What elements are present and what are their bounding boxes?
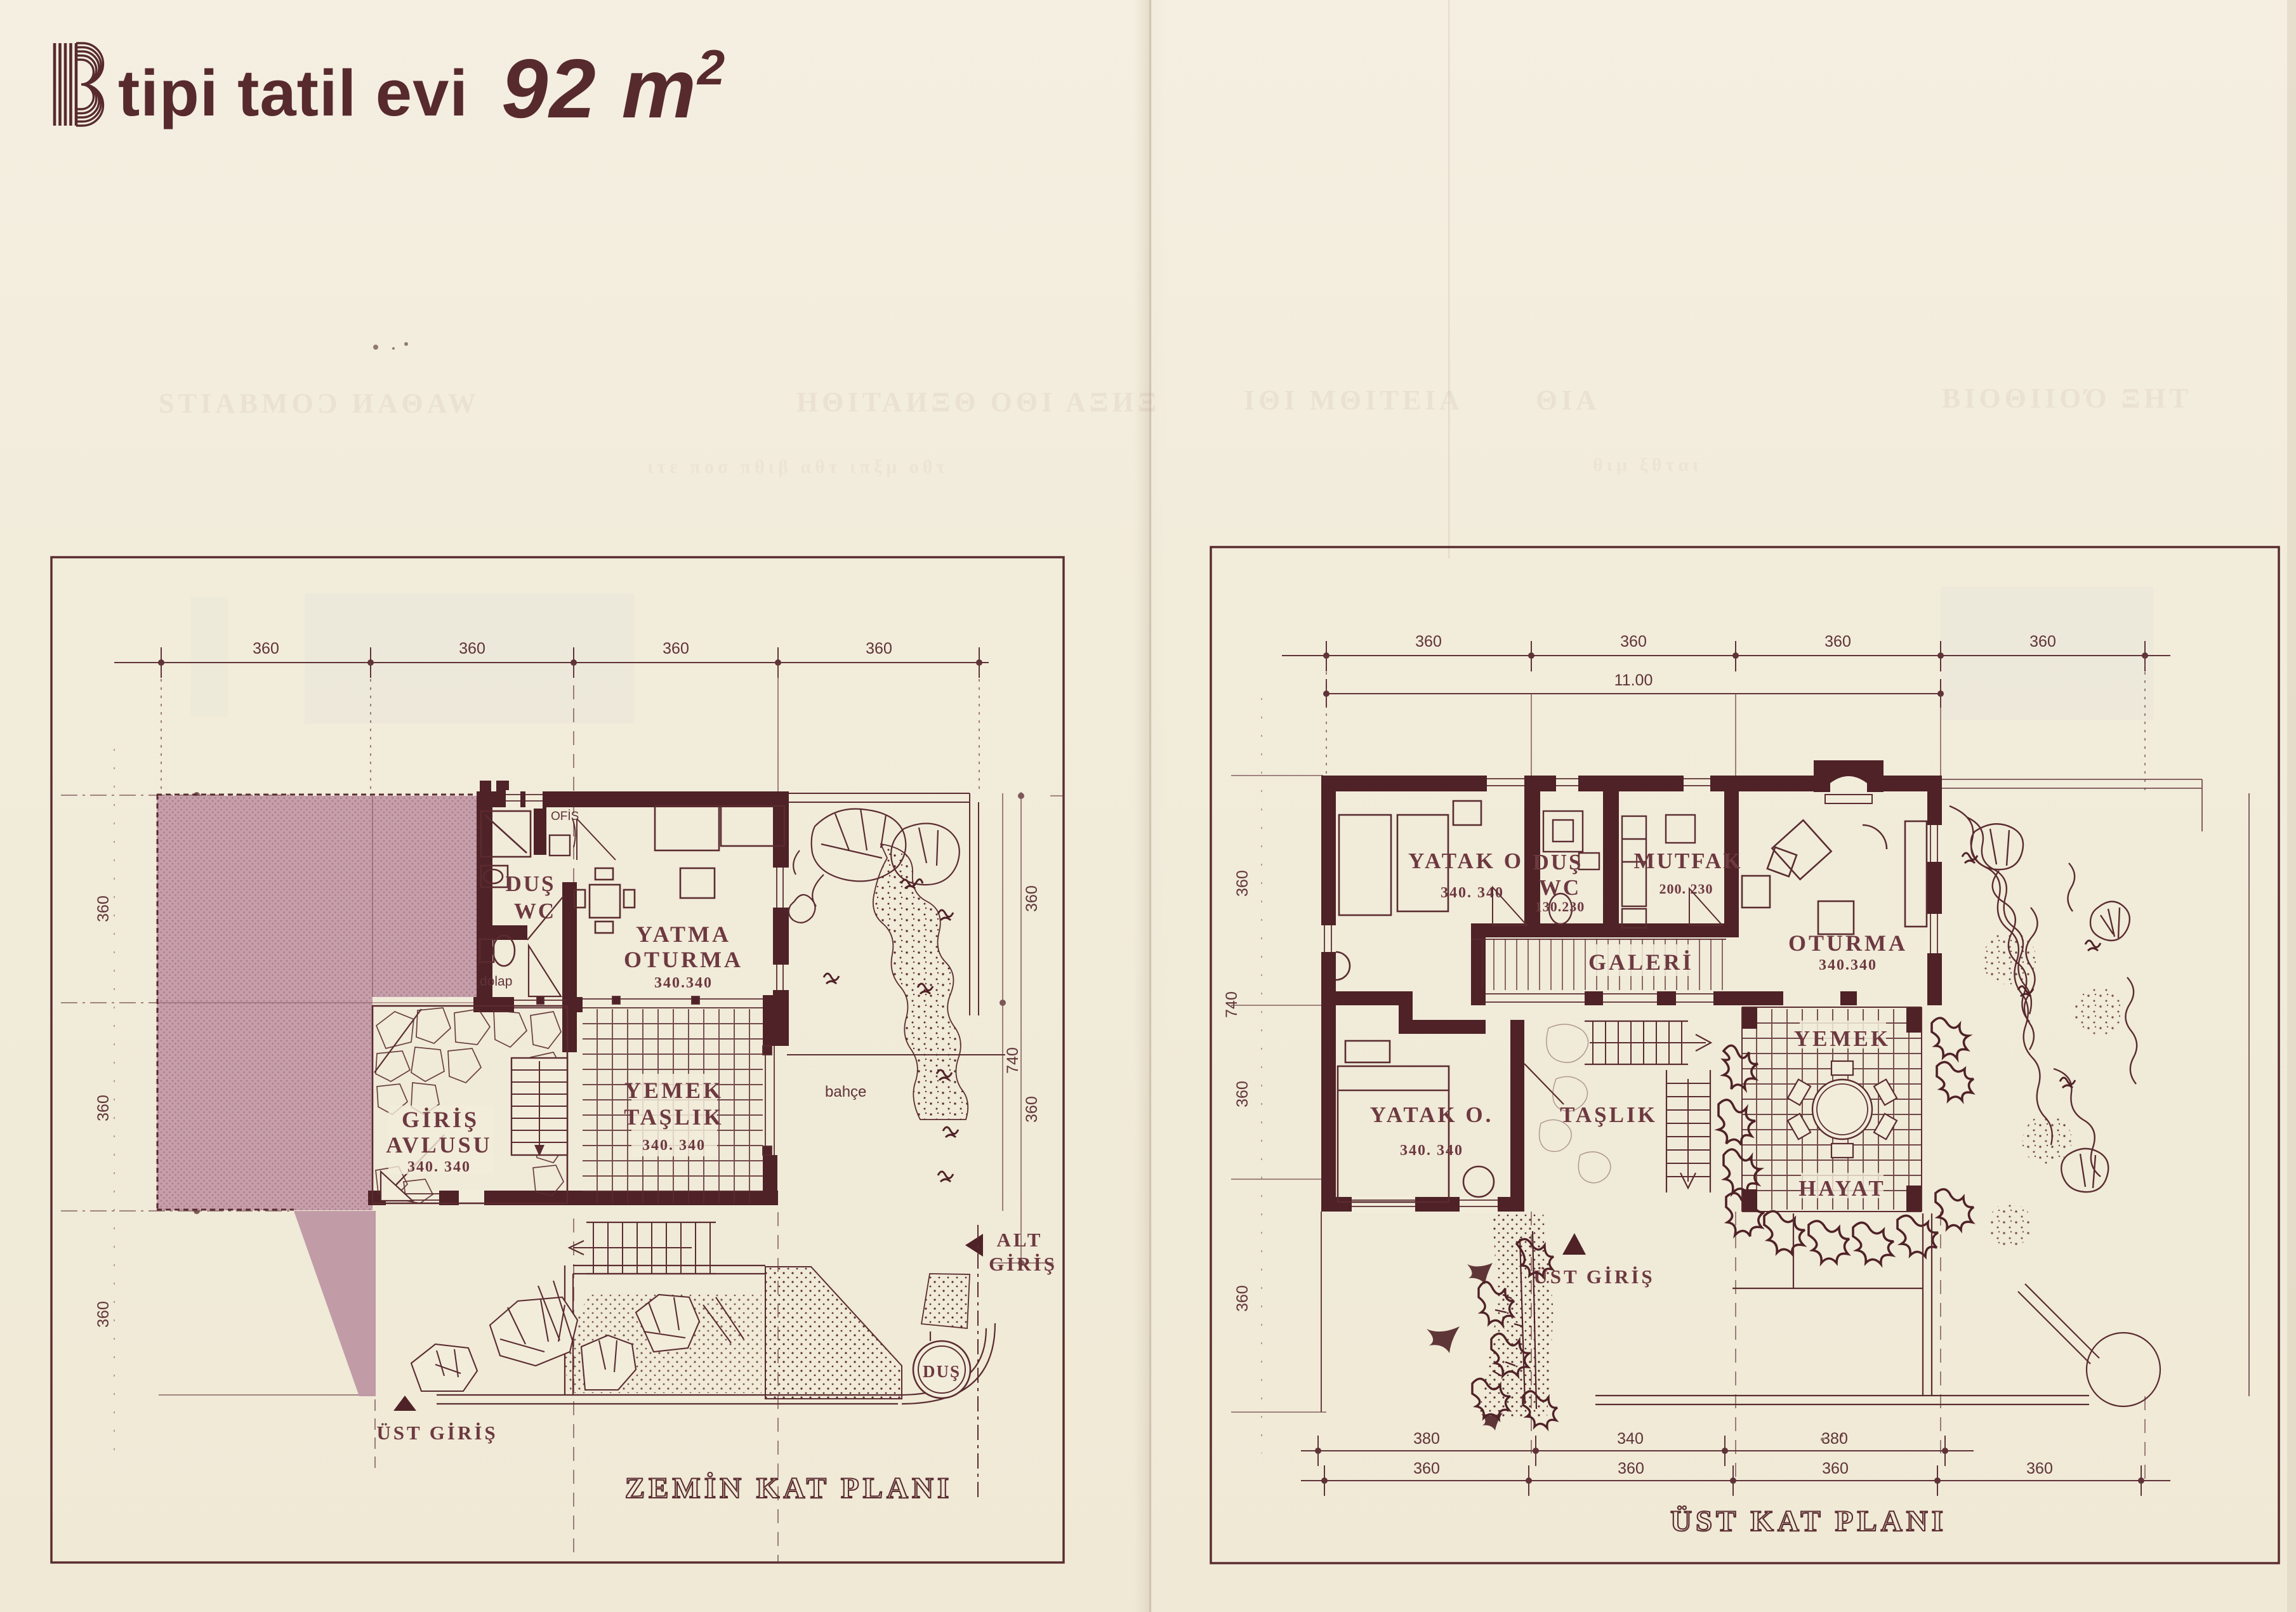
svg-text:360: 360 (1234, 1285, 1251, 1312)
svg-text:DUŞ: DUŞ (923, 1362, 961, 1381)
svg-text:WC: WC (514, 899, 556, 923)
svg-text:360: 360 (1023, 885, 1041, 912)
svg-text:OTURMA: OTURMA (624, 947, 743, 972)
svg-text:tipi tatil evi: tipi tatil evi (118, 56, 468, 129)
svg-text:DUŞ: DUŞ (505, 871, 555, 896)
svg-text:340. 340: 340. 340 (1441, 885, 1504, 901)
svg-text:ΘΙΑ: ΘΙΑ (1536, 385, 1600, 416)
svg-text:340.340: 340.340 (654, 975, 713, 991)
svg-text:360: 360 (1415, 633, 1442, 651)
svg-text:OTURMA: OTURMA (1788, 930, 1908, 956)
svg-text:340. 340: 340. 340 (407, 1159, 471, 1175)
svg-text:dolap: dolap (480, 974, 512, 989)
svg-text:360: 360 (1620, 633, 1647, 651)
svg-text:STIABMOƆ ИAΘAW: STIABMOƆ ИAΘAW (159, 388, 480, 419)
svg-text:YATAK O.: YATAK O. (1370, 1102, 1494, 1127)
svg-text:θιμ ξθται: θιμ ξθται (1593, 454, 1702, 475)
svg-text:200. 230: 200. 230 (1659, 881, 1713, 897)
svg-text:360: 360 (459, 640, 485, 657)
svg-text:360: 360 (1023, 1096, 1041, 1123)
svg-text:740: 740 (1004, 1047, 1022, 1074)
svg-text:YEMEK: YEMEK (624, 1078, 723, 1103)
svg-text:360: 360 (253, 640, 279, 657)
svg-text:360: 360 (95, 895, 112, 922)
svg-text:TAŞLIK: TAŞLIK (1560, 1102, 1658, 1127)
svg-text:HAYAT: HAYAT (1798, 1176, 1885, 1201)
svg-text:340.340: 340.340 (1819, 957, 1877, 974)
svg-text:ÜST GİRİŞ: ÜST GİRİŞ (376, 1422, 498, 1444)
svg-text:11.00: 11.00 (1614, 671, 1653, 689)
svg-text:ΒΙΟΘΙΙΟΌ ΞΗΤ: ΒΙΟΘΙΙΟΌ ΞΗΤ (1942, 383, 2192, 414)
svg-text:360: 360 (1824, 633, 1851, 651)
svg-text:130.230: 130.230 (1535, 899, 1585, 915)
svg-text:OFİS: OFİS (551, 810, 579, 823)
svg-text:GALERİ: GALERİ (1588, 949, 1694, 975)
svg-text:ΗΘΙΤΑИΞΘ ΟΘΙ ΑΞИΞ: ΗΘΙΤΑИΞΘ ΟΘΙ ΑΞИΞ (796, 386, 1160, 418)
svg-text:YATMA: YATMA (636, 922, 731, 947)
svg-text:360: 360 (1234, 870, 1251, 897)
svg-text:ALT: ALT (997, 1229, 1043, 1251)
svg-text:YATAK O: YATAK O (1408, 849, 1524, 873)
svg-text:360: 360 (1618, 1460, 1644, 1477)
svg-text:380: 380 (1413, 1430, 1440, 1448)
svg-text:92 m2: 92 m2 (501, 39, 726, 135)
svg-text:AVLUSU: AVLUSU (386, 1132, 492, 1158)
svg-text:340: 340 (1617, 1430, 1644, 1448)
svg-text:360: 360 (1234, 1081, 1251, 1107)
svg-text:bahçe: bahçe (825, 1083, 866, 1100)
svg-text:ÜST KAT PLANI: ÜST KAT PLANI (1670, 1505, 1947, 1538)
svg-text:GİRİŞ: GİRİŞ (402, 1107, 479, 1132)
svg-text:ΙΘΙ ΜΘΙΤΕΙΑ: ΙΘΙ ΜΘΙΤΕΙΑ (1244, 385, 1463, 416)
svg-text:340. 340: 340. 340 (642, 1137, 706, 1154)
svg-text:TAŞLIK: TAŞLIK (624, 1104, 723, 1130)
svg-text:360: 360 (1822, 1460, 1849, 1477)
svg-text:WC: WC (1539, 875, 1581, 900)
svg-text:360: 360 (1413, 1460, 1440, 1477)
svg-text:MUTFAK: MUTFAK (1634, 849, 1743, 873)
svg-text:360: 360 (866, 640, 892, 657)
svg-text:360: 360 (2029, 633, 2056, 651)
svg-text:ZEMİN KAT PLANI: ZEMİN KAT PLANI (625, 1472, 953, 1505)
svg-text:360: 360 (95, 1095, 112, 1121)
svg-text:DUŞ: DUŞ (1533, 850, 1583, 875)
svg-text:GİRİŞ: GİRİŞ (989, 1253, 1057, 1275)
svg-text:ιτε ποσ πθιβ αθτ ιπξμ οθτ: ιτε ποσ πθιβ αθτ ιπξμ οθτ (647, 456, 949, 477)
svg-text:380: 380 (1821, 1430, 1848, 1448)
svg-text:740: 740 (1223, 991, 1241, 1018)
svg-text:340. 340: 340. 340 (1400, 1142, 1463, 1159)
svg-text:360: 360 (2026, 1460, 2053, 1477)
svg-text:360: 360 (95, 1301, 112, 1328)
svg-text:YEMEK: YEMEK (1794, 1026, 1890, 1051)
svg-text:360: 360 (663, 640, 689, 657)
